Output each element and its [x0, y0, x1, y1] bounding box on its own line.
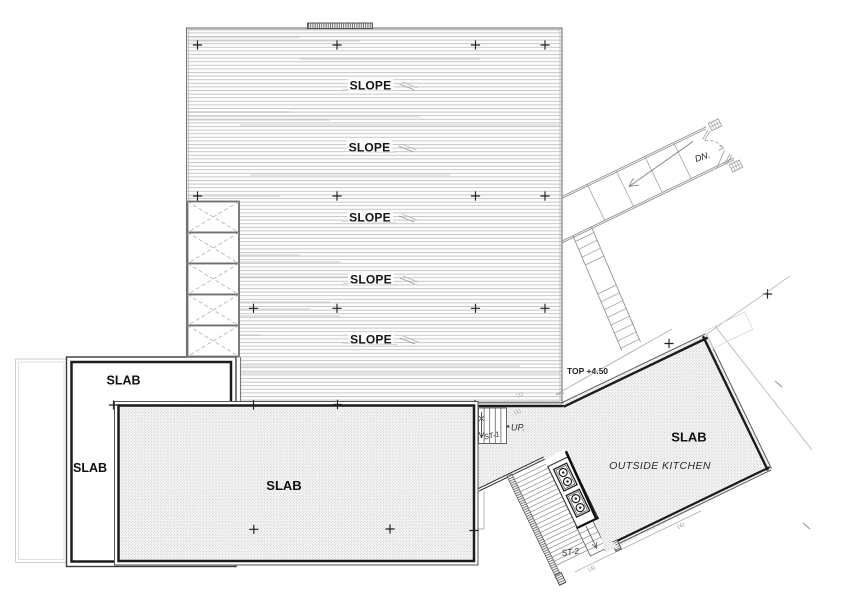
svg-text:UP.: UP. — [511, 423, 525, 433]
svg-text:OUTSIDE KITCHEN: OUTSIDE KITCHEN — [609, 460, 711, 472]
svg-text:SLAB: SLAB — [671, 430, 706, 445]
svg-text:SLAB: SLAB — [106, 374, 140, 388]
svg-text:SLAB: SLAB — [73, 461, 107, 475]
svg-text:SLAB: SLAB — [266, 478, 301, 493]
svg-text:TOP +4.50: TOP +4.50 — [567, 366, 608, 376]
